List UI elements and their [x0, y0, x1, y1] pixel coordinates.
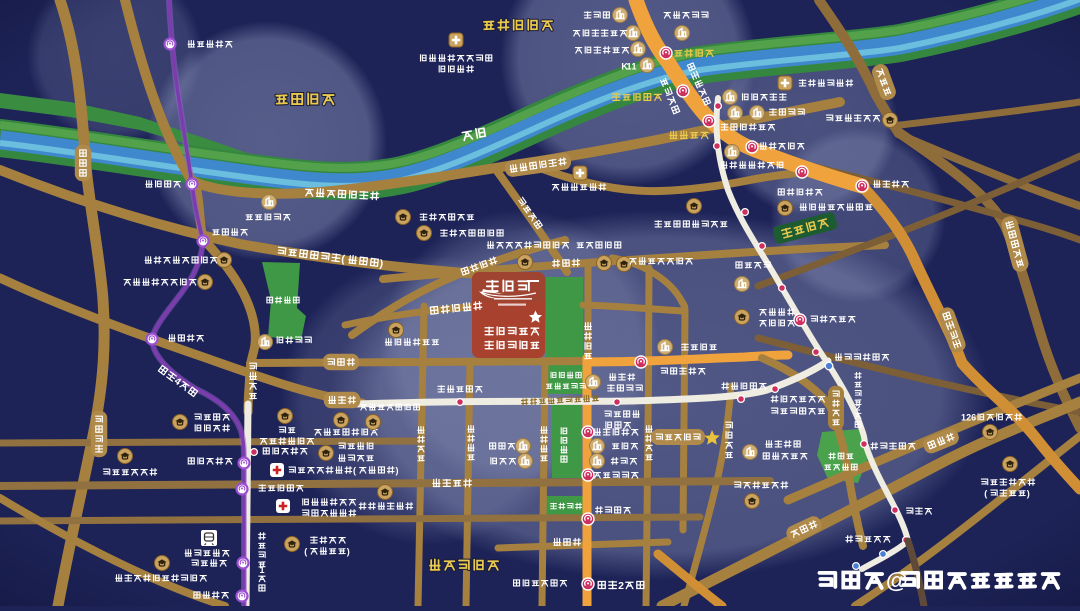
svg-text:6: 6 — [971, 412, 976, 422]
svg-text:1: 1 — [259, 565, 264, 575]
svg-text:2: 2 — [618, 580, 624, 592]
svg-text:2: 2 — [856, 403, 861, 413]
svg-text:1: 1 — [632, 61, 637, 71]
svg-text:): ) — [347, 546, 350, 556]
svg-text:(: ( — [304, 546, 307, 556]
svg-text:(: ( — [353, 465, 356, 475]
svg-text:): ) — [1027, 488, 1030, 498]
svg-text:(: ( — [984, 488, 987, 498]
svg-text:): ) — [396, 465, 399, 475]
